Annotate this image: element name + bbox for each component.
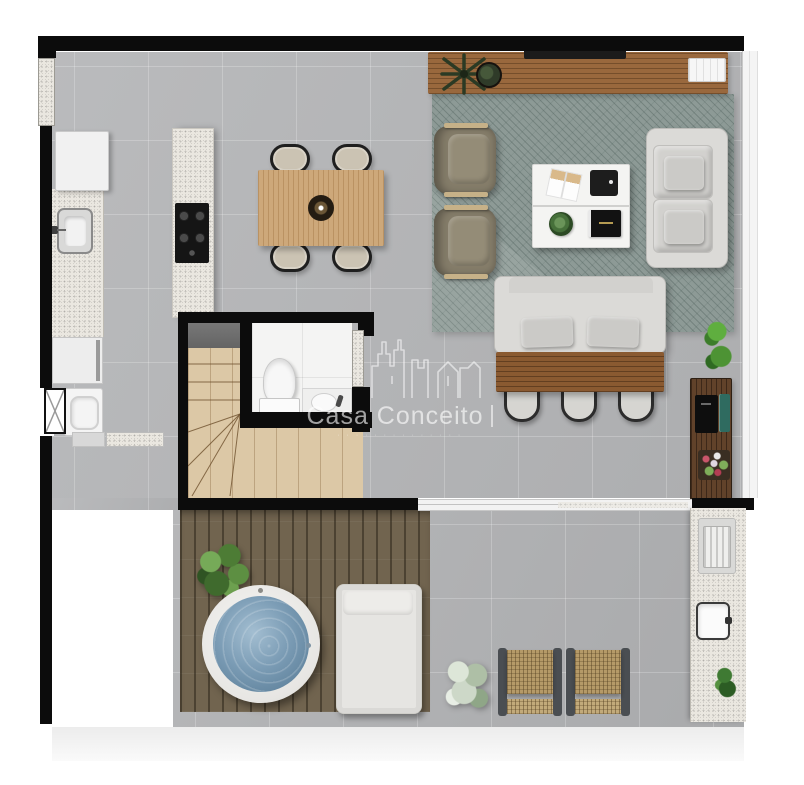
wall-left-corner <box>38 36 56 58</box>
washing-machine <box>64 388 103 436</box>
oven-hinge <box>96 340 100 381</box>
dining-chair <box>332 242 372 272</box>
sofa-seat <box>653 199 713 253</box>
water-ripples <box>213 596 309 692</box>
hot-tub-water <box>213 596 309 692</box>
stair-landing <box>188 322 244 348</box>
table-divider <box>533 205 629 207</box>
bath-faucet-icon <box>335 395 343 408</box>
book-line <box>599 222 613 224</box>
stair-block-wall-left <box>178 312 188 510</box>
table-plant-icon <box>549 212 573 236</box>
black-tray <box>590 170 618 196</box>
pale-plant-icon <box>438 652 496 718</box>
chair-frame <box>553 648 562 716</box>
bathroom-niche-ledge <box>352 330 364 387</box>
counter-plant-icon <box>712 664 740 702</box>
armrest-wood <box>444 274 488 279</box>
centerpiece-bowl <box>308 195 334 221</box>
bath-sink-basin <box>311 393 337 412</box>
armrest-wood <box>444 123 488 128</box>
armchair <box>434 208 496 276</box>
door-x-icon <box>46 390 64 432</box>
tub-jet <box>258 588 263 593</box>
bar-plant-icon <box>700 320 734 372</box>
floor-plan: Casa Conceito · · · · · · · · · · · · · … <box>0 0 804 785</box>
outdoor-faucet-icon <box>725 617 732 624</box>
glass-midline <box>749 51 750 498</box>
kitchen-sink <box>57 208 93 254</box>
sink-basin <box>64 216 86 246</box>
black-book <box>588 210 621 237</box>
entry-corridor-floor <box>52 498 178 510</box>
bar-teal-box <box>719 394 730 432</box>
armchair-cushion <box>448 134 490 184</box>
wicker-footrest <box>575 699 621 714</box>
wicker-seat <box>507 650 553 694</box>
appliance-label <box>701 403 711 405</box>
hot-tub <box>202 585 320 703</box>
wicker-lounge-chair <box>498 648 562 716</box>
sliding-glass-door <box>418 499 692 511</box>
dining-chair <box>270 242 310 272</box>
sofa-pillow <box>664 210 704 244</box>
sun-lounger-mattress <box>336 584 422 714</box>
right-glass-wall <box>742 51 758 498</box>
armrest-wood <box>444 205 488 210</box>
entry-threshold <box>106 432 164 447</box>
door-leaf <box>558 502 688 508</box>
entry-door <box>44 388 66 434</box>
sofa-pillow <box>664 156 704 190</box>
oven-appliance <box>52 337 103 384</box>
armchair <box>434 126 496 194</box>
armchair-cushion <box>448 216 490 266</box>
chair-frame <box>498 648 507 716</box>
grill-grate <box>703 526 731 568</box>
books-stack <box>688 58 726 82</box>
bench-pillow <box>586 316 639 348</box>
left-service-ledge <box>38 58 55 126</box>
outdoor-sink <box>696 602 730 640</box>
sofa-seat <box>653 145 713 199</box>
tub-jet <box>306 643 311 648</box>
wall-middle <box>178 498 418 510</box>
chair-frame <box>566 648 575 716</box>
chair-frame <box>621 648 630 716</box>
washer-drum <box>70 396 99 430</box>
wicker-footrest <box>507 699 553 714</box>
bathroom-wall-right-bottom <box>352 387 370 432</box>
wicker-lounge-chair <box>566 648 630 716</box>
armrest-wood <box>444 192 488 197</box>
refrigerator <box>55 131 109 191</box>
bathroom-sink-counter <box>302 388 352 414</box>
wall-top <box>40 36 744 51</box>
bench-pillow <box>520 316 573 348</box>
bar-appliance <box>695 395 718 433</box>
door-track-line <box>418 504 558 505</box>
cooktop <box>175 203 209 263</box>
lounger-pillow <box>343 591 413 615</box>
flower-planter <box>698 450 730 480</box>
entry-mat <box>72 432 105 447</box>
sofa-back <box>509 277 653 293</box>
tray-dot <box>609 180 613 184</box>
two-seat-sofa <box>646 128 728 268</box>
exterior-ground-band <box>52 727 744 761</box>
stair-block-wall-top <box>178 312 374 323</box>
kitchen-faucet-spout <box>57 229 66 231</box>
pot-plant-icon <box>476 62 502 88</box>
wicker-seat <box>575 650 621 694</box>
bench-sofa <box>494 276 666 354</box>
rear-dining-table <box>496 352 664 392</box>
bathroom-wall-inner <box>240 312 252 428</box>
